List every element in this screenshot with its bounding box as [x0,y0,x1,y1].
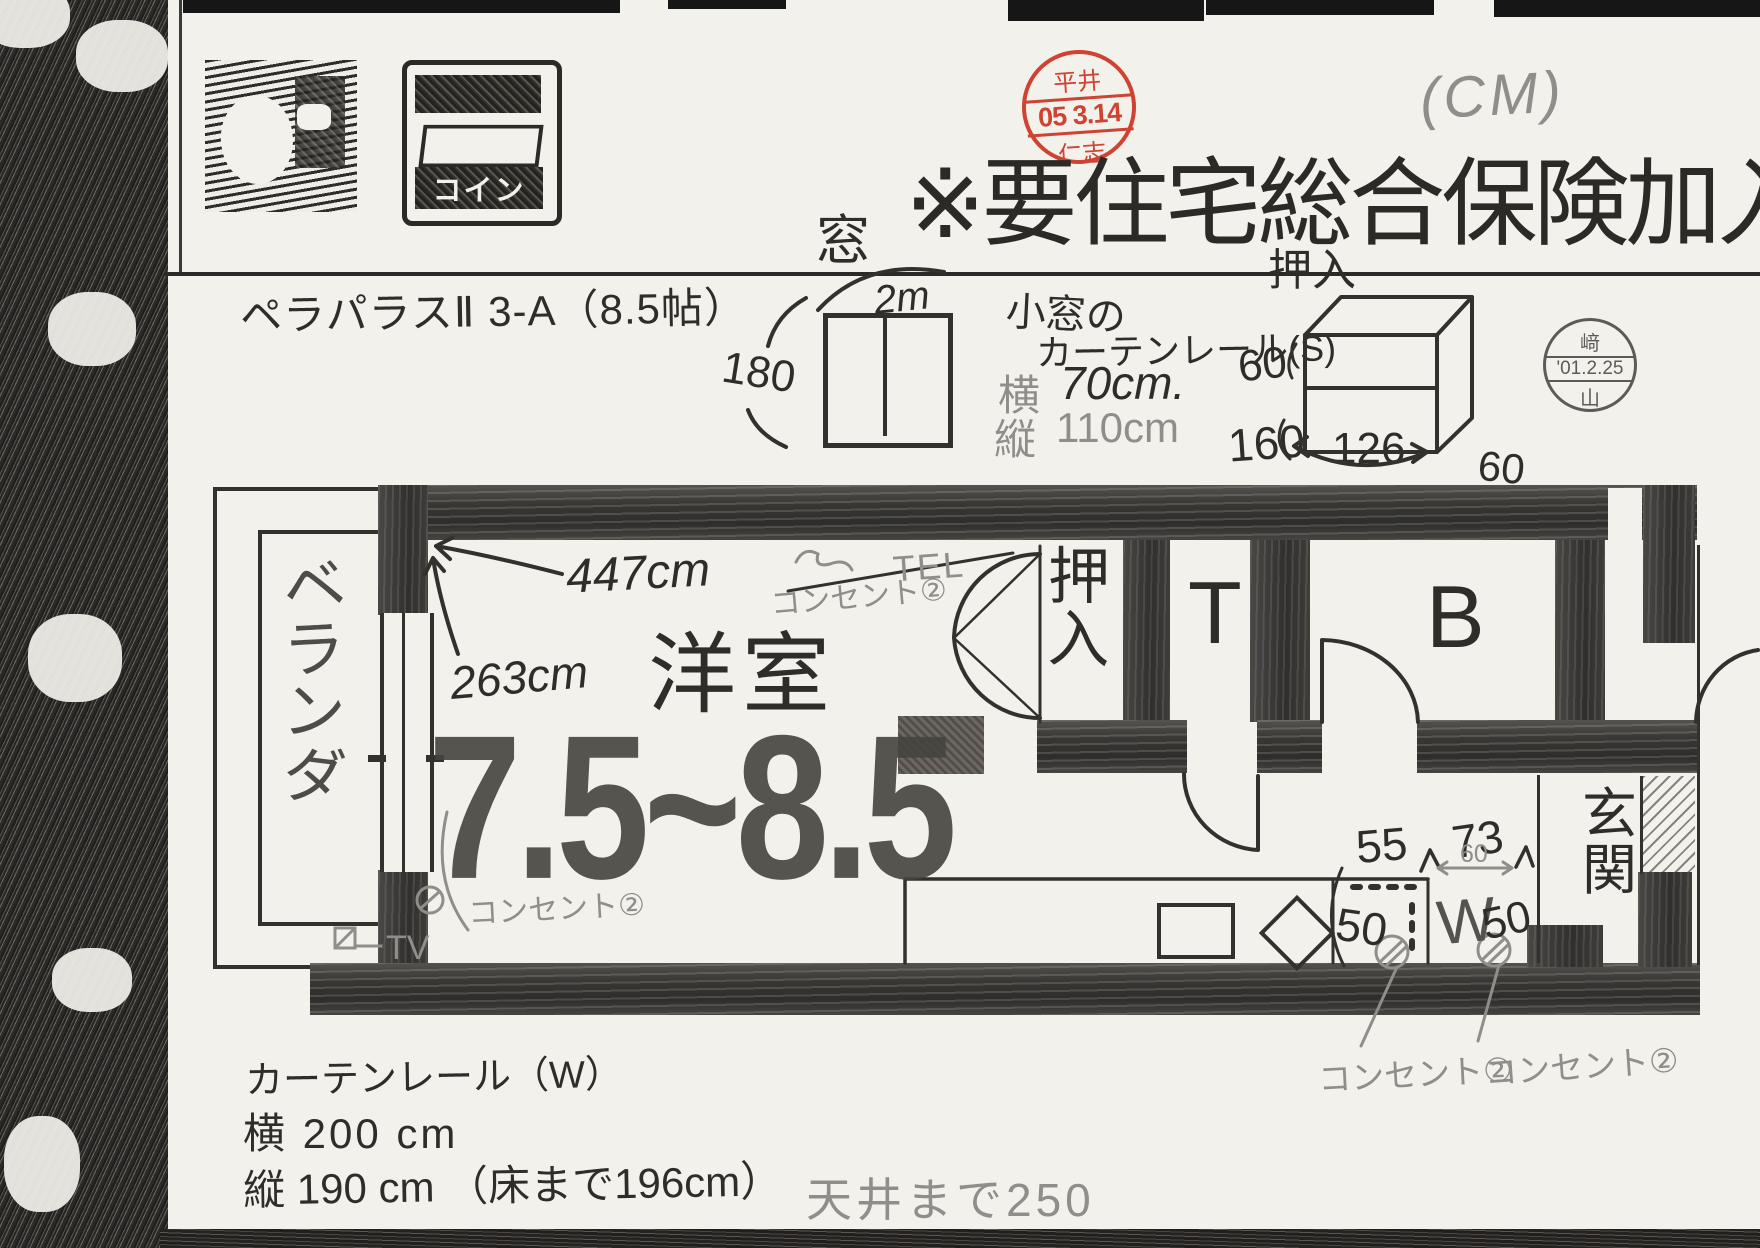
dim-55: 55 [1354,816,1410,874]
bath-label: B [1426,566,1485,668]
toilet-door-arc [1184,774,1258,850]
width-447-arrow [436,538,562,574]
closet-bifold-leaves [954,554,1040,718]
closet-box-3d [1305,297,1472,452]
entrance-door-arc [1696,650,1758,722]
tel-note: TEL [892,544,967,591]
curtain-rail-height: 縦 190 cm （床まで196cm） [243,1147,783,1217]
entrance-char: 玄 [1582,786,1637,842]
closet-char: 押 [1048,546,1110,609]
dim-60-pencil: 60 [1460,840,1488,869]
pencil-scribble [796,551,852,570]
pencil-pointer-line [1361,965,1499,1046]
outlet-note-left: コンセント② [467,879,646,932]
curtain-rail-width: 横 200 cm [243,1100,458,1161]
closet-char: 入 [1047,608,1111,673]
room-width: 447cm [565,542,712,604]
window-sketch-bracket [818,269,944,310]
scanned-floorplan-sheet: コイン 平井 05 3.14 仁志 (CM) ※要住宅総合保険加入 ペラパラスⅡ… [0,0,1760,1248]
dim-50-counter: 50 [1332,897,1390,958]
closet-brace [1279,344,1296,459]
closet-box-front [1305,335,1437,452]
closet-bifold-door [954,554,1040,718]
tv-note: ーTV [352,920,429,969]
closet-room-label: 押 入 [1048,546,1110,672]
entrance-char: 関 [1582,842,1637,898]
toilet-label: T [1188,562,1242,664]
ceiling-height-note: 天井まで250 [806,1164,1095,1230]
depth-263-arrow [425,558,458,654]
window-height-bracket [748,298,806,447]
dim-50-washer: 50 [1477,891,1535,950]
bath-door-arc [1322,640,1418,722]
entrance-label: 玄 関 [1582,786,1637,898]
curtain-rail-note: カーテンレール（W） [245,1043,624,1105]
